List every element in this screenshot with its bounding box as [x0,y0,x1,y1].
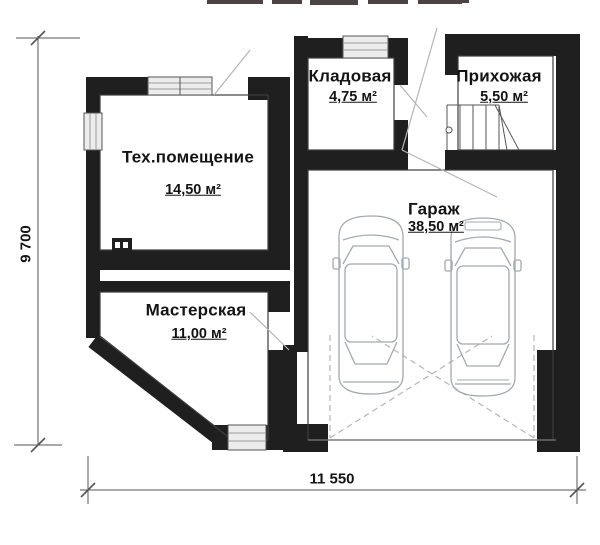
room-area-storeroom: 4,75 м² [329,90,377,105]
room-area-hallway: 5,50 м² [480,90,528,105]
car-icon [333,216,409,394]
room-label-garage: Гараж [408,201,460,218]
dimension-label-horizontal: 11 550 [309,472,354,487]
car-detail-lines [457,222,509,380]
room-area-garage: 38,50 м² [408,220,464,235]
cropped-title-marks [207,0,469,5]
stairs [446,105,519,150]
room-area-tech: 14,50 м² [165,183,221,198]
boiler-icon [112,238,132,251]
window-storeroom-top [343,36,388,58]
room-label-workshop: Мастерская [146,302,247,319]
floor-plan: Тех.помещение 14,50 м² Кладовая 4,75 м² … [0,0,600,545]
car-icon [445,218,521,396]
garage-door-symbol [308,335,556,440]
room-label-hallway: Прихожая [456,68,541,85]
room-area-workshop: 11,00 м² [171,327,226,342]
room-label-storeroom: Кладовая [308,68,391,85]
room-label-tech: Тех.помещение [122,149,254,166]
dimension-label-vertical: 9 700 [19,225,34,263]
window-tech-left [84,113,102,150]
window-workshop-bottom [228,425,266,450]
window-tech-top [148,77,212,95]
